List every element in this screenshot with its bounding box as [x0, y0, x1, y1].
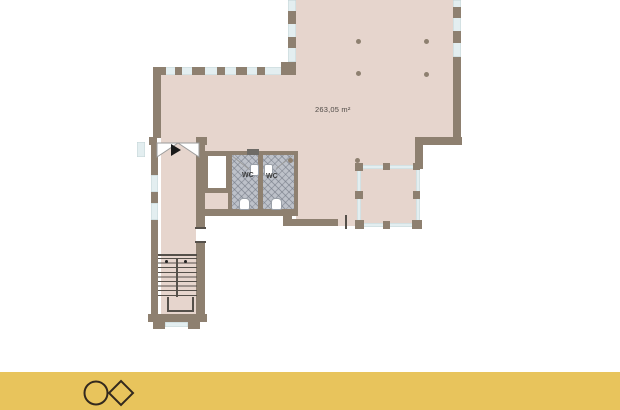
window-left-sill: [137, 142, 145, 157]
window-strip-topleft: [288, 0, 296, 62]
glass-post: [383, 221, 390, 229]
wall-corridor-right-lower: [196, 243, 205, 315]
area-label: 263,05 m²: [315, 105, 351, 114]
entrance-door: [148, 136, 210, 162]
stairwell-stub-left: [153, 322, 165, 329]
wall-corner: [281, 62, 296, 75]
room-top-right-floor: [296, 0, 453, 140]
window-corridor-1: [151, 175, 158, 192]
column: [424, 72, 429, 77]
wall-right-solid: [453, 57, 461, 145]
door-threshold-bottom: [195, 241, 206, 243]
footer-banner: genea Immobilien Bürofläche Graz - St.Pe…: [0, 372, 620, 410]
door-swing-right: [178, 143, 199, 157]
window-pillar: [217, 67, 225, 75]
column: [356, 71, 361, 76]
window-corridor-2: [151, 203, 158, 220]
stair-dot-right: [184, 260, 187, 263]
wall-corridor-left: [151, 145, 158, 315]
stairwell-bottom-wall: [148, 314, 207, 322]
entrance-arrow-icon: [171, 144, 181, 156]
window-pillar: [453, 31, 461, 43]
glass-post: [412, 220, 422, 229]
stairwell-stub-right: [188, 322, 200, 329]
corridor-door-gap: [196, 229, 205, 241]
wall-south: [283, 219, 338, 226]
south-door-tick: [345, 215, 347, 229]
column: [356, 39, 361, 44]
glass-post: [355, 191, 363, 199]
genea-logo-icon: [82, 378, 138, 408]
floor-plan-page: WC WC: [0, 0, 620, 410]
stairwell-bottom-window: [165, 322, 188, 327]
wc-right-toilet: [271, 198, 282, 210]
column: [424, 39, 429, 44]
glass-post: [355, 220, 364, 229]
wc-left-toilet: [239, 198, 250, 210]
column: [288, 158, 293, 163]
door-threshold-top: [195, 227, 206, 229]
window-pillar: [288, 11, 296, 24]
window-pillar: [175, 67, 182, 75]
glass-post: [413, 191, 420, 199]
wc-left-label: WC: [242, 172, 254, 179]
wc-right-label: WC: [266, 173, 278, 180]
window-pillar: [257, 67, 265, 75]
stair-landing-line: [158, 254, 197, 256]
column: [355, 158, 360, 163]
glass-post: [383, 163, 390, 170]
wall-left-outer: [153, 67, 161, 138]
window-pillar: [288, 37, 296, 48]
window-pillar: [453, 7, 461, 18]
window-pillar: [192, 67, 205, 75]
stair-divider: [176, 258, 178, 299]
glass-post: [413, 163, 420, 170]
utility-room: [208, 156, 226, 188]
stair-landing: [167, 297, 194, 312]
glass-post: [355, 163, 363, 171]
window-pillar: [236, 67, 247, 75]
stair-dot-left: [165, 260, 168, 263]
floor-plan: WC WC: [0, 0, 620, 372]
